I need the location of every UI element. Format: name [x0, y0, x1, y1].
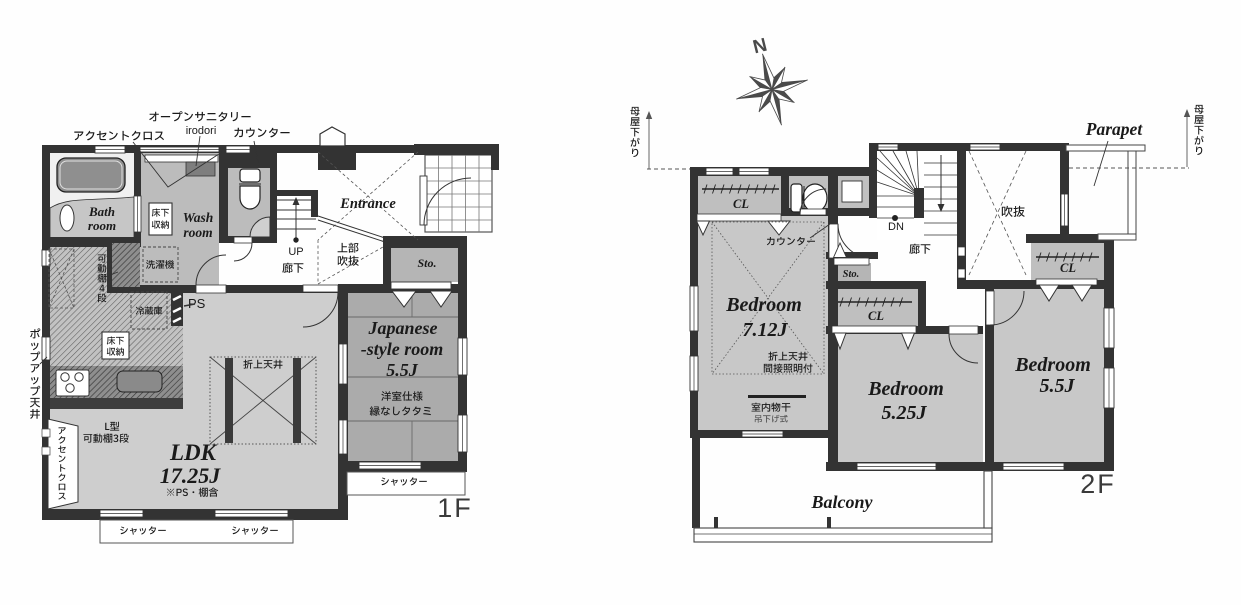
svg-text:Wash: Wash: [183, 210, 214, 225]
svg-text:Bedroom: Bedroom: [867, 378, 944, 400]
svg-text:Balcony: Balcony: [811, 492, 874, 512]
svg-text:5.5J: 5.5J: [386, 360, 419, 380]
svg-text:PS: PS: [188, 296, 206, 311]
svg-text:5.25J: 5.25J: [882, 402, 928, 424]
svg-text:DN: DN: [888, 221, 904, 233]
svg-text:Bedroom: Bedroom: [725, 294, 802, 316]
svg-text:LDK: LDK: [169, 440, 218, 465]
svg-text:UP: UP: [288, 246, 303, 258]
svg-text:Bath: Bath: [88, 204, 115, 219]
svg-text:room: room: [183, 225, 212, 240]
svg-text:room: room: [88, 218, 116, 233]
svg-text:Japanese: Japanese: [368, 318, 438, 338]
svg-text:Parapet: Parapet: [1085, 119, 1144, 139]
svg-text:irodori: irodori: [186, 125, 217, 137]
svg-text:7.12J: 7.12J: [743, 319, 789, 341]
svg-text:17.25J: 17.25J: [160, 463, 222, 488]
svg-text:2F: 2F: [1080, 469, 1116, 499]
svg-text:Sto.: Sto.: [417, 256, 436, 270]
svg-text:CL: CL: [733, 197, 749, 211]
svg-text:CL: CL: [868, 309, 884, 323]
svg-text:5.5J: 5.5J: [1040, 375, 1076, 397]
svg-text:Bedroom: Bedroom: [1014, 354, 1091, 376]
svg-text:Sto.: Sto.: [843, 269, 860, 280]
svg-text:CL: CL: [1060, 261, 1076, 275]
svg-text:1F: 1F: [437, 493, 473, 523]
svg-text:Entrance: Entrance: [339, 196, 396, 212]
svg-text:-style room: -style room: [361, 339, 444, 359]
